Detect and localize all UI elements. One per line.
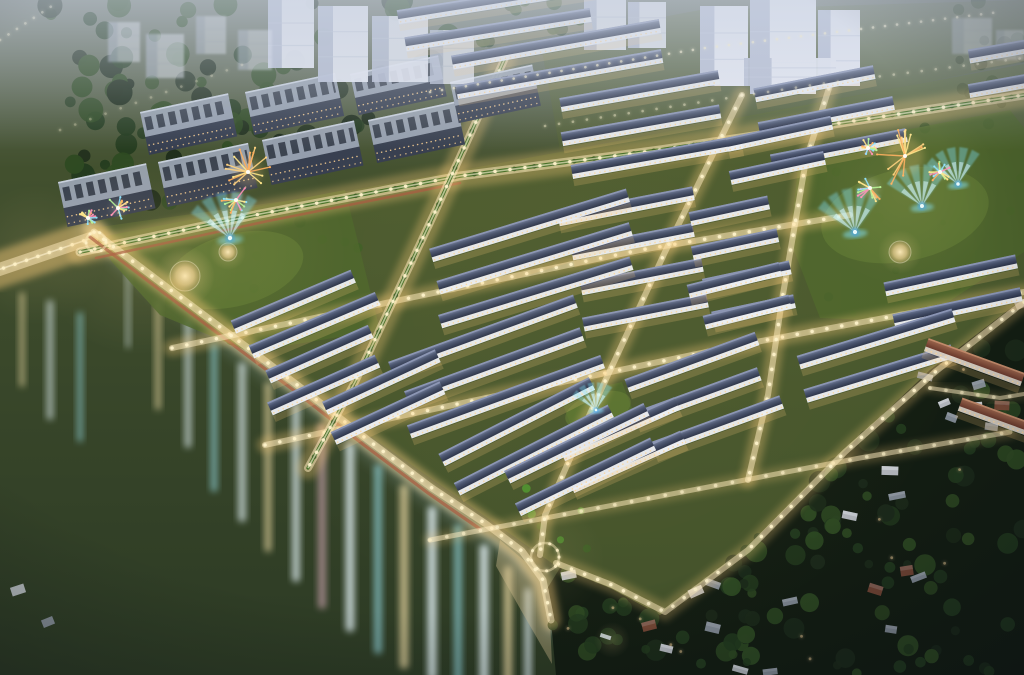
render-canvas: [0, 0, 1024, 675]
vignette: [0, 0, 1024, 675]
township-aerial-render: [0, 0, 1024, 675]
